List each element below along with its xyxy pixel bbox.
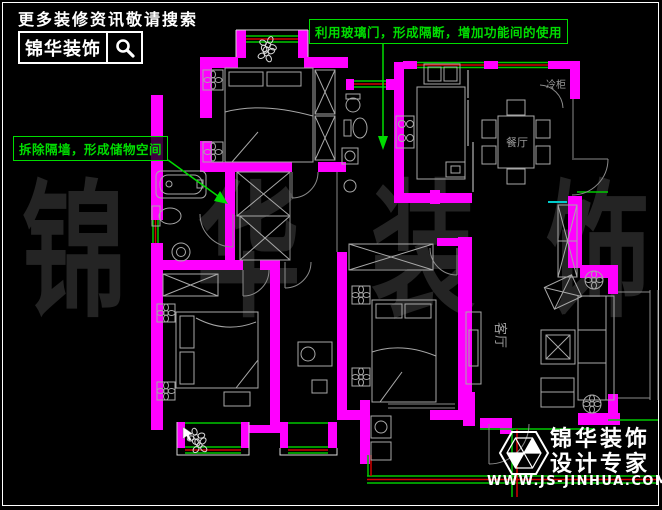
storage-closets bbox=[237, 172, 290, 260]
kitchen-fixtures bbox=[396, 64, 465, 179]
callout-glass-door: 利用玻璃门，形成隔断，增加功能间的使用 bbox=[309, 19, 568, 44]
bedroom2-door bbox=[430, 248, 457, 275]
callout-storage: 拆除隔墙，形成储物空间 bbox=[13, 136, 168, 161]
living-furniture bbox=[466, 271, 614, 413]
wardrobe-1 bbox=[315, 70, 335, 160]
study-door bbox=[285, 262, 311, 288]
corridor-walls bbox=[290, 172, 337, 260]
brand-name: 锦华装饰 bbox=[20, 33, 106, 62]
walls bbox=[151, 30, 620, 464]
fridge-label: 冷柜 bbox=[546, 78, 566, 91]
search-icon bbox=[106, 33, 141, 62]
study-furniture bbox=[298, 342, 332, 393]
bathroom1-fixtures bbox=[342, 94, 367, 192]
shoe-cabinet bbox=[558, 205, 577, 277]
bed-1 bbox=[203, 68, 313, 162]
entry-door bbox=[572, 159, 608, 195]
living-label: 客厅 bbox=[492, 322, 508, 348]
bedroom1-door bbox=[292, 172, 318, 198]
bedroom3-door bbox=[243, 270, 269, 296]
floorplan-canvas: 餐厅 客厅 冷柜 bbox=[0, 0, 662, 510]
bay-plant-top bbox=[250, 32, 286, 70]
dining-label: 餐厅 bbox=[506, 135, 528, 149]
brand-search-box: 锦华装饰 bbox=[18, 31, 143, 64]
bed-2 bbox=[349, 244, 436, 402]
search-tagline: 更多装修资讯敬请搜索 bbox=[18, 6, 198, 30]
cad-screenshot: 锦 华 装 饰 bbox=[0, 0, 662, 510]
